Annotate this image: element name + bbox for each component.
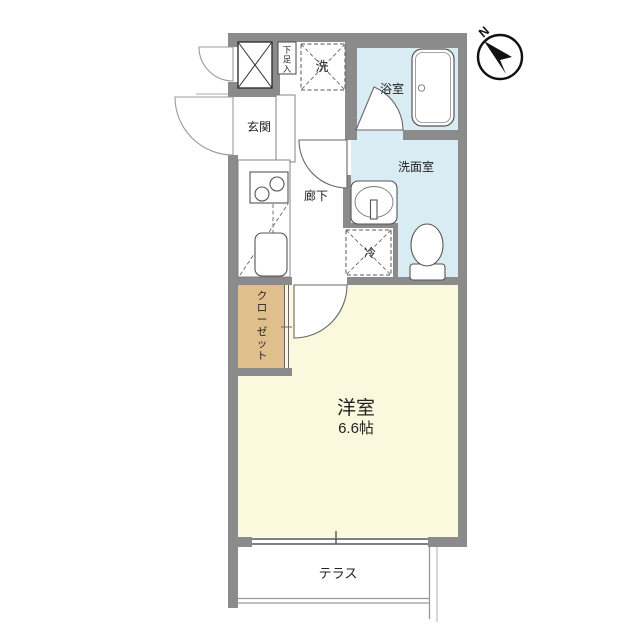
genkan-label: 玄関	[247, 119, 271, 134]
wall-nook-right	[393, 228, 398, 277]
washroom-label: 洗面室	[398, 159, 434, 174]
toilet	[410, 224, 445, 280]
wall-bottom-left-stub	[228, 537, 252, 547]
main-room-label: 洋室	[337, 397, 375, 419]
bathtub-drain	[418, 85, 424, 91]
wall-right	[458, 33, 467, 547]
toilet-bowl	[411, 224, 443, 266]
washer-label: 洗	[315, 59, 328, 74]
bathroom-label: 浴室	[380, 81, 404, 96]
floor-plan-canvas: 玄関 廊下 浴室 洗面室 洗 冷 洋室 6.6帖 テラス クローゼット 下足入 …	[0, 0, 640, 640]
wall-left-seg1	[228, 33, 238, 47]
kitchen-counter	[238, 160, 290, 277]
kitchen-sink	[255, 233, 287, 276]
wall-bath-west-stub	[345, 48, 357, 140]
stove-burner-2	[270, 177, 284, 191]
closet-label: クローゼット	[257, 290, 268, 362]
wall-top-bathroom	[345, 33, 467, 48]
wash-basin-faucet	[371, 200, 378, 219]
entrance-cabinet	[276, 95, 295, 162]
wall-bottom-right-stub	[428, 537, 467, 547]
wall-closet-bottom	[228, 368, 292, 376]
wash-basin	[351, 181, 397, 224]
main-room-size-label: 6.6帖	[338, 420, 374, 437]
fridge-label: 冷	[364, 246, 376, 260]
wall-left-seg2	[228, 82, 238, 97]
bathtub	[412, 49, 454, 126]
meter-box	[238, 42, 272, 88]
stove-burner-1	[255, 187, 269, 201]
bathroom-doorway-floor	[357, 130, 403, 140]
wall-room-north-right	[347, 277, 467, 285]
wall-bath-south	[403, 130, 467, 140]
terrace-label: テラス	[319, 566, 358, 581]
wall-room-north-left	[228, 277, 292, 285]
hallway-label: 廊下	[304, 188, 328, 203]
shoe-cabinet-label: 下足入	[283, 45, 292, 74]
floor-plan-svg: 玄関 廊下 浴室 洗面室 洗 冷 洋室 6.6帖 テラス クローゼット 下足入 …	[0, 0, 640, 640]
